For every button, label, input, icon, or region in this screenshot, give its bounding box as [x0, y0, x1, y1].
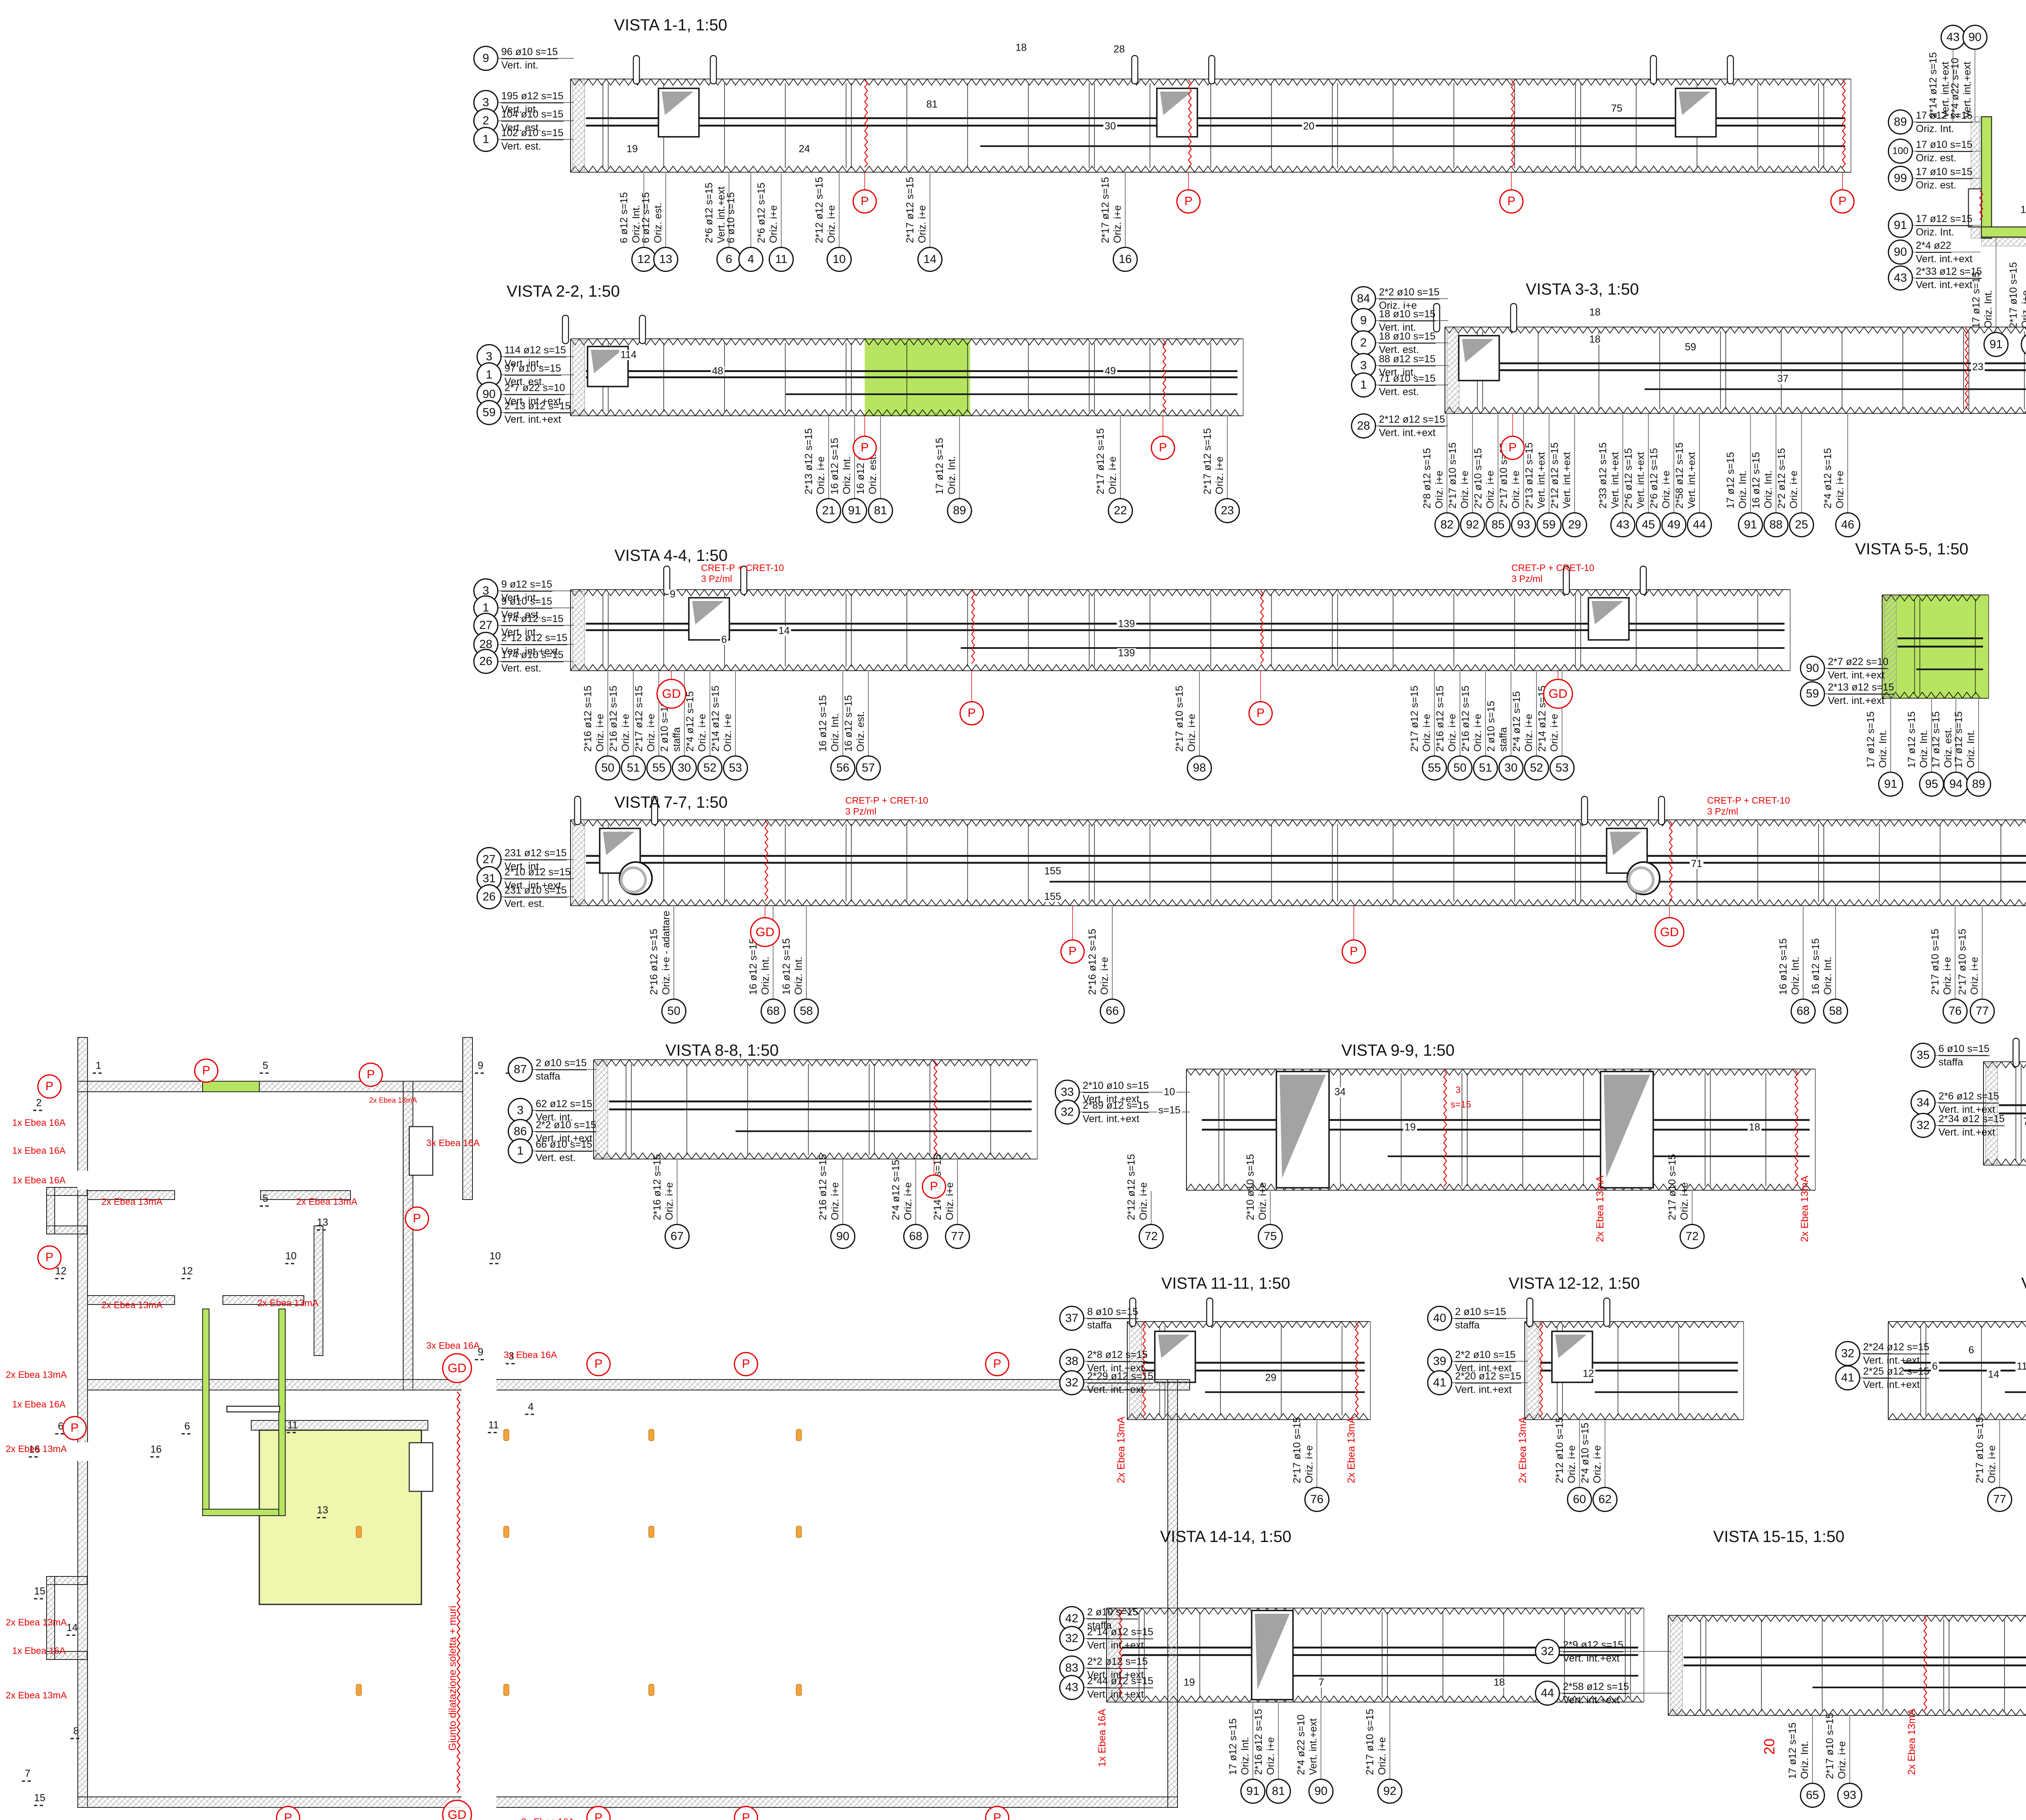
- rotated-label: 16 ø12 s=15Oriz. Int.: [1750, 452, 1774, 509]
- plan-red-label-text: 2x Ebea 13mA: [296, 1196, 357, 1207]
- callout-label-line1: 2*6 ø12 s=15: [1938, 1090, 1999, 1104]
- rotated-label: 2x Ebea 13mA: [1517, 1417, 1529, 1483]
- plan-red-label-text: 1x Ebea 16A: [12, 1145, 66, 1156]
- callout-label: 18 ø10 s=15Vert. int.: [1379, 308, 1436, 334]
- callout-label: 2*13 ø12 s=15Vert. int.+ext: [504, 400, 571, 426]
- callout-68: 68: [761, 999, 786, 1024]
- callout-1: 1: [1351, 372, 1376, 398]
- rotated-label: 2*16 ø12 s=15Oriz. i+e: [651, 1154, 675, 1220]
- callout-label: 17 ø10 s=15Oriz. est.: [1916, 166, 1973, 191]
- rot-label-line1: 2*4 ø12 s=15: [1511, 691, 1523, 752]
- rot-label-line1: 2*17 ø12 s=15: [1201, 428, 1214, 494]
- rot-label-line1: 2x Ebea 13mA: [1906, 1709, 1918, 1775]
- rotated-label: 6 ø12 s=15Oriz. est.: [640, 192, 664, 243]
- plan-red-label-text: 2x Ebea 13mA: [257, 1298, 318, 1308]
- plan-red-label: 2x Ebea 13mA: [6, 1369, 67, 1380]
- rotated-label: 2*4 ø12 s=15Oriz. i+e: [890, 1160, 914, 1220]
- callout-label-line1: 2*4 ø22: [1916, 240, 1951, 253]
- red-note: s=15: [1451, 1099, 1471, 1110]
- callout-21: 21: [816, 498, 841, 523]
- red-note: CRET-P + CRET-103 Pz/ml: [1511, 562, 1594, 584]
- rotated-label: 2*17 ø12 s=15Oriz. i+e: [1094, 428, 1119, 494]
- plan-red-label: 2x Ebea 13mA: [296, 1196, 357, 1207]
- callout-label-line2: Vert. est.: [501, 140, 564, 152]
- rotated-label: 2x Ebea 13mA: [1115, 1417, 1127, 1483]
- callout-label-line1: 97 ø10 s=15: [504, 362, 561, 376]
- callout-11: 11: [769, 247, 794, 272]
- rot-label-line1: 2*17 ø10 s=15: [1291, 1417, 1303, 1483]
- rot-label-line1: 16 ø12 s=15: [1750, 452, 1762, 509]
- rot-label-line1: 17 ø12 s=15: [1865, 711, 1877, 768]
- callout-label-line1: 96 ø10 s=15: [501, 46, 558, 59]
- vista-4-4-title: VISTA 4-4, 1:50: [614, 547, 727, 565]
- callout-29: 29: [1562, 512, 1587, 537]
- dimension: 75: [1610, 104, 1624, 114]
- callout-label: 102 ø10 s=15Vert. est.: [501, 127, 564, 152]
- marker-P: P: [405, 1206, 429, 1231]
- callout-label: 2*44 ø12 s=15Vert. int.+ext: [1087, 1675, 1153, 1700]
- callout-90: 90: [1308, 1779, 1334, 1804]
- callout-label-line2: Oriz. Int.: [1916, 226, 1973, 238]
- callout-label: 66 ø10 s=15Vert. est.: [536, 1138, 592, 1164]
- callout-label-line2: Oriz. est.: [1998, 151, 2026, 163]
- callout-label-line2: Oriz. Int.: [1916, 123, 1973, 135]
- rotated-label: 17 ø12 s=15Oriz. Int.: [1725, 452, 1749, 509]
- rotated-label: 2*17 ø10 s=15Oriz. i+e: [1974, 1417, 1998, 1483]
- callout-label-line1: 2*24 ø12 s=15: [1863, 1341, 1929, 1354]
- rot-label-line2: Oriz. i+e: [1834, 448, 1846, 509]
- rot-label-line1: 2*17 ø10 s=15: [1956, 929, 1968, 995]
- callout-99: 99: [1888, 166, 1913, 191]
- rot-label-line1: 2*12 ø12 s=15: [1549, 443, 1561, 509]
- rotated-label: 16 ø12 s=15Oriz. Int.: [1810, 938, 1834, 995]
- rot-label-line1: 2*6 ø12 s=15: [755, 183, 767, 243]
- rot-label-line1: 2*16 ø12 s=15: [1460, 686, 1472, 752]
- rotated-label: 2x Ebea 13mA: [1345, 1417, 1357, 1483]
- vista-15-15-title: VISTA 15-15, 1:50: [1713, 1528, 1844, 1546]
- rot-label-line1: 2*4 ø12 s=15: [1822, 448, 1834, 509]
- callout-label-line1: 2*2 ø10 s=15: [1455, 1349, 1515, 1362]
- callout-label-line1: 2*2 ø10 s=15: [536, 1119, 596, 1132]
- rotated-label: 2*12 ø12 s=15Oriz. i+e: [813, 177, 838, 243]
- callout-label-line1: 9 ø10 s=15: [501, 595, 552, 609]
- vista-11-11-title: VISTA 11-11, 1:50: [1161, 1275, 1290, 1292]
- rot-label-line2: Oriz. i+e: [1098, 929, 1111, 995]
- marker-P: P: [1830, 189, 1855, 214]
- plan-red-label: 1x Ebea 16A: [12, 1117, 66, 1128]
- section-marker-9: 9: [478, 1061, 483, 1071]
- callout-label-line1: 231 ø12 s=15: [504, 847, 567, 860]
- callout-72: 72: [1139, 1224, 1164, 1249]
- rot-label-line2: Oriz. i+e: [1986, 1417, 1998, 1483]
- callout-12: 12: [631, 247, 656, 272]
- rotated-label: 1x Ebea 16A: [1096, 1709, 1108, 1767]
- callout-label: 17 ø10 s=15Oriz. est.: [1916, 139, 1973, 164]
- callout-label: 174 ø10 s=15Vert. est.: [501, 649, 564, 674]
- dimension: 139: [1117, 619, 1136, 629]
- vista-5-5-title: VISTA 5-5, 1:50: [1855, 540, 1968, 558]
- callout-label-line1: 2*33 ø12 s=15: [1916, 265, 1982, 279]
- dimension: 19: [1403, 1123, 1417, 1133]
- rotated-label: 2*17 ø10 s=15Oriz. i+e: [1929, 929, 1953, 995]
- dimension: 18: [1492, 1678, 1506, 1688]
- callout-50: 50: [1447, 755, 1472, 781]
- callout-43: 43: [1610, 512, 1635, 537]
- marker-P: P: [734, 1352, 758, 1376]
- rot-label-line2: Oriz. Int.: [1799, 1722, 1811, 1779]
- rotated-label: 2x Ebea 13mA: [1799, 1176, 1811, 1242]
- rotated-label: 2*8 ø12 s=15Oriz. i+e: [1421, 448, 1445, 509]
- callout-label-line1: 102 ø10 s=15: [501, 127, 564, 140]
- callout-23: 23: [1215, 498, 1240, 523]
- marker-P: P: [960, 701, 984, 725]
- dimension: 14: [1987, 1370, 2000, 1380]
- callout-label: 2*20 ø12 s=15Vert. int.+ext: [1455, 1370, 1521, 1396]
- rot-label-line2: Oriz. i+e: [620, 686, 632, 752]
- callout-32: 32: [1911, 1113, 1936, 1138]
- rotated-label: 17 ø12 s=15Oriz. Int.: [934, 438, 958, 494]
- plan-red-label: 2x Ebea 13mA: [257, 1298, 318, 1309]
- callout-label-line1: 18 ø10 s=15: [1379, 330, 1436, 344]
- callout-label-line2: Vert. int.+ext: [1087, 1688, 1153, 1700]
- callout-55: 55: [646, 755, 671, 781]
- section-marker-13: 13: [317, 1506, 328, 1516]
- callout-label-line2: Vert. est.: [501, 662, 564, 674]
- marker-P: P: [922, 1174, 946, 1199]
- callout-41: 41: [1427, 1370, 1452, 1395]
- callout-87: 87: [508, 1057, 533, 1082]
- callout-label-line1: 9 ø12 s=15: [501, 578, 552, 592]
- rot-label-line1: 16 ø12 s=15: [842, 695, 855, 752]
- callout-label-line1: 2 ø10 s=15: [1455, 1306, 1506, 1319]
- callout-95: 95: [1919, 772, 1944, 797]
- rot-label-line1: 2*6 ø12 s=15: [1648, 448, 1660, 509]
- red-note: CRET-P + CRET-103 Pz/ml: [701, 562, 784, 584]
- rot-label-line1: 2*16 ø12 s=15: [1252, 1709, 1265, 1775]
- rot-label-line1: 6 ø12 s=15: [618, 192, 630, 243]
- callout-28: 28: [1351, 413, 1376, 438]
- callout-44: 44: [1535, 1681, 1560, 1706]
- plan-red-label-text: 3x Ebea 16A: [426, 1138, 480, 1148]
- dimension: 155: [1043, 866, 1062, 877]
- callout-label-line1: 62 ø12 s=15: [536, 1098, 592, 1111]
- rotated-label: 2*16 ø12 s=15Oriz. i+e - adattare: [648, 911, 672, 995]
- plan-red-label: 3x Ebea 16A: [504, 1349, 557, 1360]
- rot-label-line1: 17 ø12 s=15: [1930, 711, 1942, 768]
- callout-label: 2*25 ø12 s=15Vert. int.+ext: [1863, 1365, 1929, 1391]
- plan-red-label-text: 2x Ebea 13mA: [6, 1369, 67, 1380]
- rotated-label: 17 ø12 s=15Oriz. Int.: [1787, 1722, 1811, 1779]
- section-marker-14: 14: [66, 1623, 78, 1633]
- dimension: 49: [1103, 366, 1117, 376]
- rot-label-line1: 2*10 ø10 s=15: [1244, 1154, 1257, 1220]
- marker-P: P: [1342, 939, 1366, 964]
- callout-label-line1: 2*20 ø12 s=15: [1455, 1370, 1521, 1384]
- callout-91: 91: [1738, 512, 1763, 537]
- marker-P: P: [853, 436, 877, 460]
- rotated-label: 17 ø12 s=15Oriz. Int.: [1953, 711, 1977, 768]
- dimension: 48: [711, 366, 724, 376]
- callout-13: 13: [653, 247, 678, 272]
- rotated-label: 2*17 ø12 s=15Oriz. i+e: [1408, 686, 1433, 752]
- rotated-label: 2*16 ø12 s=15Oriz. i+e: [1086, 929, 1111, 995]
- callout-label-line2: staffa: [536, 1070, 587, 1082]
- rotated-label: 2*4 ø22 s=10Vert. int.+ext: [1295, 1715, 1319, 1775]
- red-note-line1: CRET-P + CRET-10: [1511, 562, 1594, 573]
- callout-81: 81: [1266, 1779, 1291, 1804]
- plan-red-label: 2x Ebea 13mA: [6, 1690, 67, 1701]
- callout-30: 30: [1498, 755, 1524, 781]
- callout-label: 2*14 ø12 s=15Vert. int.+ext: [1087, 1626, 1153, 1651]
- callout-32: 32: [1535, 1639, 1560, 1664]
- callout-90: 90: [1888, 240, 1913, 265]
- rot-label-line1: 2 ø10 s=15: [1485, 701, 1497, 752]
- section-marker-8: 8: [73, 1726, 79, 1737]
- dimension: 59: [1684, 342, 1697, 353]
- callout-58: 58: [1823, 999, 1848, 1024]
- plan-red-label: 2x Ebea 13mA: [369, 1096, 417, 1104]
- callout-1: 1: [473, 127, 498, 152]
- rot-label-line2: Oriz. i+e: [1788, 448, 1800, 509]
- rot-label-line1: 2*17 ø12 s=15: [633, 686, 645, 752]
- rotated-label: 2*16 ø12 s=15Oriz. i+e: [607, 686, 632, 752]
- marker-GD: GD: [1654, 917, 1684, 947]
- rot-label-line2: Oriz. Int.: [1877, 711, 1889, 768]
- callout-91: 91: [842, 498, 867, 523]
- rot-label-line2: Oriz. i+e - adattare: [660, 911, 672, 995]
- vista-13-13-title: VISTA 13-13, 1:50: [2021, 1275, 2026, 1292]
- rot-label-line1: 2*6 ø12 s=15: [1622, 448, 1635, 509]
- callout-89: 89: [1888, 109, 1913, 135]
- rot-label-line2: Oriz. Int.: [1822, 938, 1834, 995]
- plan-red-label: 1x Ebea 16A: [12, 1145, 66, 1156]
- plan-red-label: 2x Ebea 13mA: [6, 1617, 67, 1628]
- marker-GD: GD: [1543, 679, 1573, 709]
- section-marker-15: 15: [34, 1587, 45, 1597]
- callout-label-line1: 2*9 ø12 s=15: [1563, 1639, 1623, 1652]
- rot-label-line2: Oriz. i+e: [1214, 428, 1226, 494]
- marker-P: P: [194, 1059, 218, 1083]
- plan-red-label-text: 2x Ebea 13mA: [6, 1617, 67, 1628]
- rot-label-line2: Oriz. Int.: [1918, 711, 1930, 768]
- callout-49: 49: [1661, 512, 1686, 537]
- rot-label-line2: Oriz. i+e: [1376, 1709, 1388, 1775]
- rot-label-line1: 16 ø12 s=15: [747, 938, 759, 995]
- section-marker-4: 4: [528, 1402, 534, 1412]
- callout-label-line1: 2*13 ø12 s=15: [1828, 681, 1894, 695]
- rot-label-line1: 2*14 ø12 s=15: [710, 686, 722, 752]
- callout-58: 58: [794, 999, 819, 1024]
- rotated-label: 2*14 ø12 s=15Vert. int.+ext: [1927, 52, 1951, 118]
- rot-label-line1: 16 ø12 s=15: [1777, 938, 1789, 995]
- callout-label-line1: 104 ø10 s=15: [501, 108, 564, 122]
- rot-label-line2: Oriz. i+e: [645, 686, 657, 752]
- callout-label-line2: Vert. int.: [501, 59, 558, 71]
- rot-label-line2: Oriz. i+e: [594, 686, 606, 752]
- callout-65: 65: [1800, 1783, 1825, 1808]
- callout-91: 91: [1240, 1779, 1265, 1804]
- marker-GD: GD: [442, 1353, 472, 1383]
- callout-label: 71 ø10 s=15Vert. est.: [1379, 372, 1436, 398]
- rot-label-line2: Vert. int.+ext: [1609, 443, 1621, 509]
- callout-label: 17 ø12 s=15Oriz. Int.: [1916, 213, 1973, 238]
- rot-label-line1: 2x Ebea 13mA: [1517, 1417, 1529, 1483]
- rot-label-line2: Oriz. Int.: [1982, 272, 1994, 328]
- marker-P: P: [1500, 436, 1525, 460]
- callout-label: 2*33 ø12 s=15Vert. int.+ext: [1916, 265, 1982, 291]
- rot-label-line2: Oriz. i+e: [1421, 686, 1433, 752]
- callout-43: 43: [1888, 265, 1913, 291]
- callout-9: 9: [473, 46, 498, 71]
- callout-68: 68: [903, 1224, 928, 1249]
- section-marker-11: 11: [488, 1420, 499, 1431]
- callout-72: 72: [1680, 1224, 1705, 1249]
- rotated-label: 2*17 ø12 s=15Oriz. i+e: [904, 177, 928, 243]
- rotated-label: 2*17 ø10 s=15Oriz. i+e: [1447, 443, 1471, 509]
- callout-89: 89: [947, 498, 972, 523]
- callout-label-line1: 2*25 ø12 s=15: [1863, 1365, 1929, 1379]
- rotated-label: 2*17 ø12 s=15Oriz. i+e: [1201, 428, 1226, 494]
- section-marker-5: 5: [263, 1061, 268, 1071]
- dimension: 81: [925, 100, 939, 110]
- rot-label-line2: Oriz. i+e: [1941, 929, 1953, 995]
- red-note-line2: 3 Pz/ml: [1511, 573, 1594, 584]
- rot-label-line2: Oriz. i+e: [1459, 443, 1471, 509]
- dimension: 18: [1748, 1123, 1761, 1133]
- callout-52: 52: [1524, 755, 1549, 781]
- callout-10: 10: [827, 247, 852, 272]
- rotated-label: 2*2 ø12 s=15Oriz. i+e: [1776, 448, 1800, 509]
- callout-label-line1: 17 ø10 s=15: [1916, 166, 1973, 179]
- callout-43: 43: [1059, 1675, 1084, 1700]
- dimension: 18: [1588, 308, 1602, 318]
- callout-label-line2: Vert. int.+ext: [1083, 1113, 1149, 1125]
- rot-label-line1: 2*13 ø12 s=15: [1523, 443, 1535, 509]
- rotated-label: 20: [1762, 1739, 1777, 1755]
- marker-P: P: [1248, 701, 1273, 725]
- dimension: 155: [1043, 892, 1062, 902]
- callout-50: 50: [595, 755, 620, 781]
- red-note-line1: CRET-P + CRET-10: [701, 562, 784, 573]
- callout-label-line1: 2*2 ø10 s=15: [1379, 286, 1439, 299]
- rot-label-line1: 2x Ebea 13mA: [1345, 1417, 1357, 1483]
- rot-label-line1: 2*2 ø10 s=15: [1472, 448, 1484, 509]
- callout-label-line2: Vert. int.+ext: [1916, 253, 1973, 265]
- rot-label-line2: Oriz. Int.: [1762, 452, 1774, 509]
- section-marker-13: 13: [317, 1218, 328, 1228]
- marker-P: P: [1176, 189, 1201, 214]
- rot-label-line1: 2*16 ø12 s=15: [607, 686, 620, 752]
- vista-14-14-title: VISTA 14-14, 1:50: [1160, 1528, 1291, 1546]
- dimension: 12: [1581, 1369, 1595, 1379]
- callout-label: 2*12 ø12 s=15Vert. int.+ext: [1379, 413, 1445, 439]
- rot-label-line1: 2*4 ø10 s=15: [1579, 1423, 1591, 1483]
- rot-label-line2: Vert. int.+ext: [1686, 443, 1698, 509]
- rot-label-line2: Oriz. i+e: [815, 428, 827, 494]
- rot-label-line2: Oriz. i+e: [696, 691, 708, 752]
- vista-12-12-title: VISTA 12-12, 1:50: [1509, 1275, 1640, 1292]
- rotated-label: Giunto dilatazione soletta + muri: [447, 1606, 459, 1751]
- callout-label-line1: 174 ø10 s=15: [501, 649, 564, 662]
- callout-98: 98: [1187, 755, 1212, 781]
- rot-label-line1: 16 ø12 s=15: [1810, 938, 1822, 995]
- rot-label-line2: Oriz. i+e: [1566, 1417, 1578, 1483]
- plan-red-label-text: 2x Ebea 13mA: [369, 1096, 417, 1104]
- rot-label-line2: Oriz. Int.: [793, 938, 805, 995]
- callout-label-line1: 2*12 ø12 s=15: [1379, 413, 1445, 427]
- dimension: 30: [1103, 122, 1117, 132]
- callout-label-line1: 2*89 ø12 s=15: [1083, 1099, 1149, 1113]
- section-marker-5: 5: [263, 1194, 268, 1204]
- callout-label: 2*34 ø12 s=15Vert. int.+ext: [1938, 1113, 2005, 1138]
- section-marker-2: 2: [36, 1098, 42, 1108]
- dimension: 14: [777, 626, 791, 636]
- rot-label-line1: 17 ø12 s=15: [934, 438, 946, 494]
- marker-P: P: [1151, 436, 1175, 460]
- rot-label-line1: 2*16 ø12 s=15: [1086, 929, 1098, 995]
- callout-label-line2: Vert. int.+ext: [504, 413, 571, 426]
- callout-50: 50: [661, 999, 686, 1024]
- callout-label-line1: 231 ø10 s=15: [504, 884, 567, 898]
- red-note: CRET-P + CRET-103 Pz/ml: [1707, 795, 1790, 817]
- rotated-label: 2*17 ø10 s=15Oriz. i+e: [1824, 1713, 1848, 1779]
- rot-label-line2: Oriz. Int.: [946, 438, 958, 494]
- vista-1-1-title: VISTA 1-1, 1:50: [614, 16, 727, 34]
- plan-red-label-text: 3x Ebea 16A: [426, 1340, 480, 1351]
- rotated-label: 2x Ebea 13mA: [1594, 1176, 1606, 1242]
- callout-59: 59: [1537, 512, 1562, 537]
- rotated-label: 2*16 ø12 s=15Oriz. i+e: [1252, 1709, 1277, 1775]
- rot-label-line2: Oriz. i+e: [1186, 686, 1198, 752]
- callout-35: 35: [1911, 1043, 1936, 1068]
- callout-6: 6: [716, 247, 742, 272]
- rotated-label: 2*6 ø12 s=15Oriz. i+e: [755, 183, 780, 243]
- callout-label: 2*58 ø12 s=15Vert. int.+ext: [1563, 1681, 1629, 1706]
- callout-76: 76: [1943, 999, 1968, 1024]
- rot-label-line1: 1x Ebea 16A: [1096, 1709, 1108, 1767]
- callout-90: 90: [830, 1224, 855, 1249]
- rotated-label: 2*14 ø12 s=15Oriz. i+e: [710, 686, 734, 752]
- rot-label-line1: 2*17 ø12 s=15: [1099, 177, 1111, 243]
- callout-label: 2 ø10 s=15staffa: [536, 1057, 587, 1082]
- rotated-label: 17 ø12 s=15Oriz. Int.: [1227, 1718, 1251, 1775]
- callout-label-line2: Oriz. est.: [1916, 179, 1973, 191]
- callout-4: 4: [738, 247, 763, 272]
- rot-label-line1: 6 ø12 s=15: [640, 192, 652, 243]
- callout-43: 43: [1941, 25, 1966, 50]
- callout-label-line1: 2*12 ø12 s=15: [501, 632, 567, 645]
- rot-label-line2: Oriz. i+e: [1111, 177, 1124, 243]
- callout-22: 22: [1108, 498, 1133, 523]
- marker-GD: GD: [656, 679, 686, 709]
- rot-label-line1: 17 ø12 s=15: [1906, 711, 1918, 768]
- callout-46: 46: [1835, 512, 1860, 537]
- rotated-label: 2*33 ø12 s=15Vert. int.+ext: [1597, 443, 1621, 509]
- callout-label-line1: 2*58 ø12 s=15: [1563, 1681, 1629, 1694]
- rotated-label: 2*17 ø10 s=15Oriz. i+e: [1956, 929, 1981, 995]
- callout-label-line1: 17 ø10 s=15: [1916, 139, 1973, 152]
- rotated-label: 2*17 ø10 s=15Oriz. i+e: [1364, 1709, 1388, 1775]
- plan-red-label: 2x Ebea 13mA: [6, 1444, 67, 1454]
- red-note-line2: 3 Pz/ml: [701, 573, 784, 584]
- plan-red-label-text: 2x Ebea 13mA: [101, 1196, 162, 1207]
- callout-label-line1: 6 ø10 s=15: [1938, 1043, 1990, 1056]
- callout-label-line1: 66 ø10 s=15: [536, 1138, 592, 1152]
- marker-P: P: [586, 1352, 611, 1376]
- rot-label-line2: Oriz. i+e: [1446, 686, 1458, 752]
- callout-label-line1: 2*7 ø22 s=10: [1828, 656, 1888, 669]
- plan-red-label: 1x Ebea 16A: [12, 1645, 66, 1656]
